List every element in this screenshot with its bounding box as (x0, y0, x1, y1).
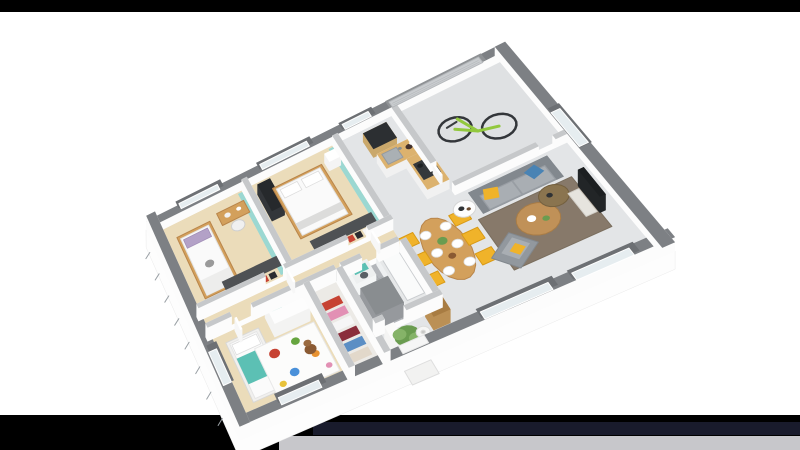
wall-bath-bottom-a (373, 315, 385, 338)
screenshot-stage (0, 0, 800, 450)
floor-plan-3d-render (0, 0, 800, 450)
